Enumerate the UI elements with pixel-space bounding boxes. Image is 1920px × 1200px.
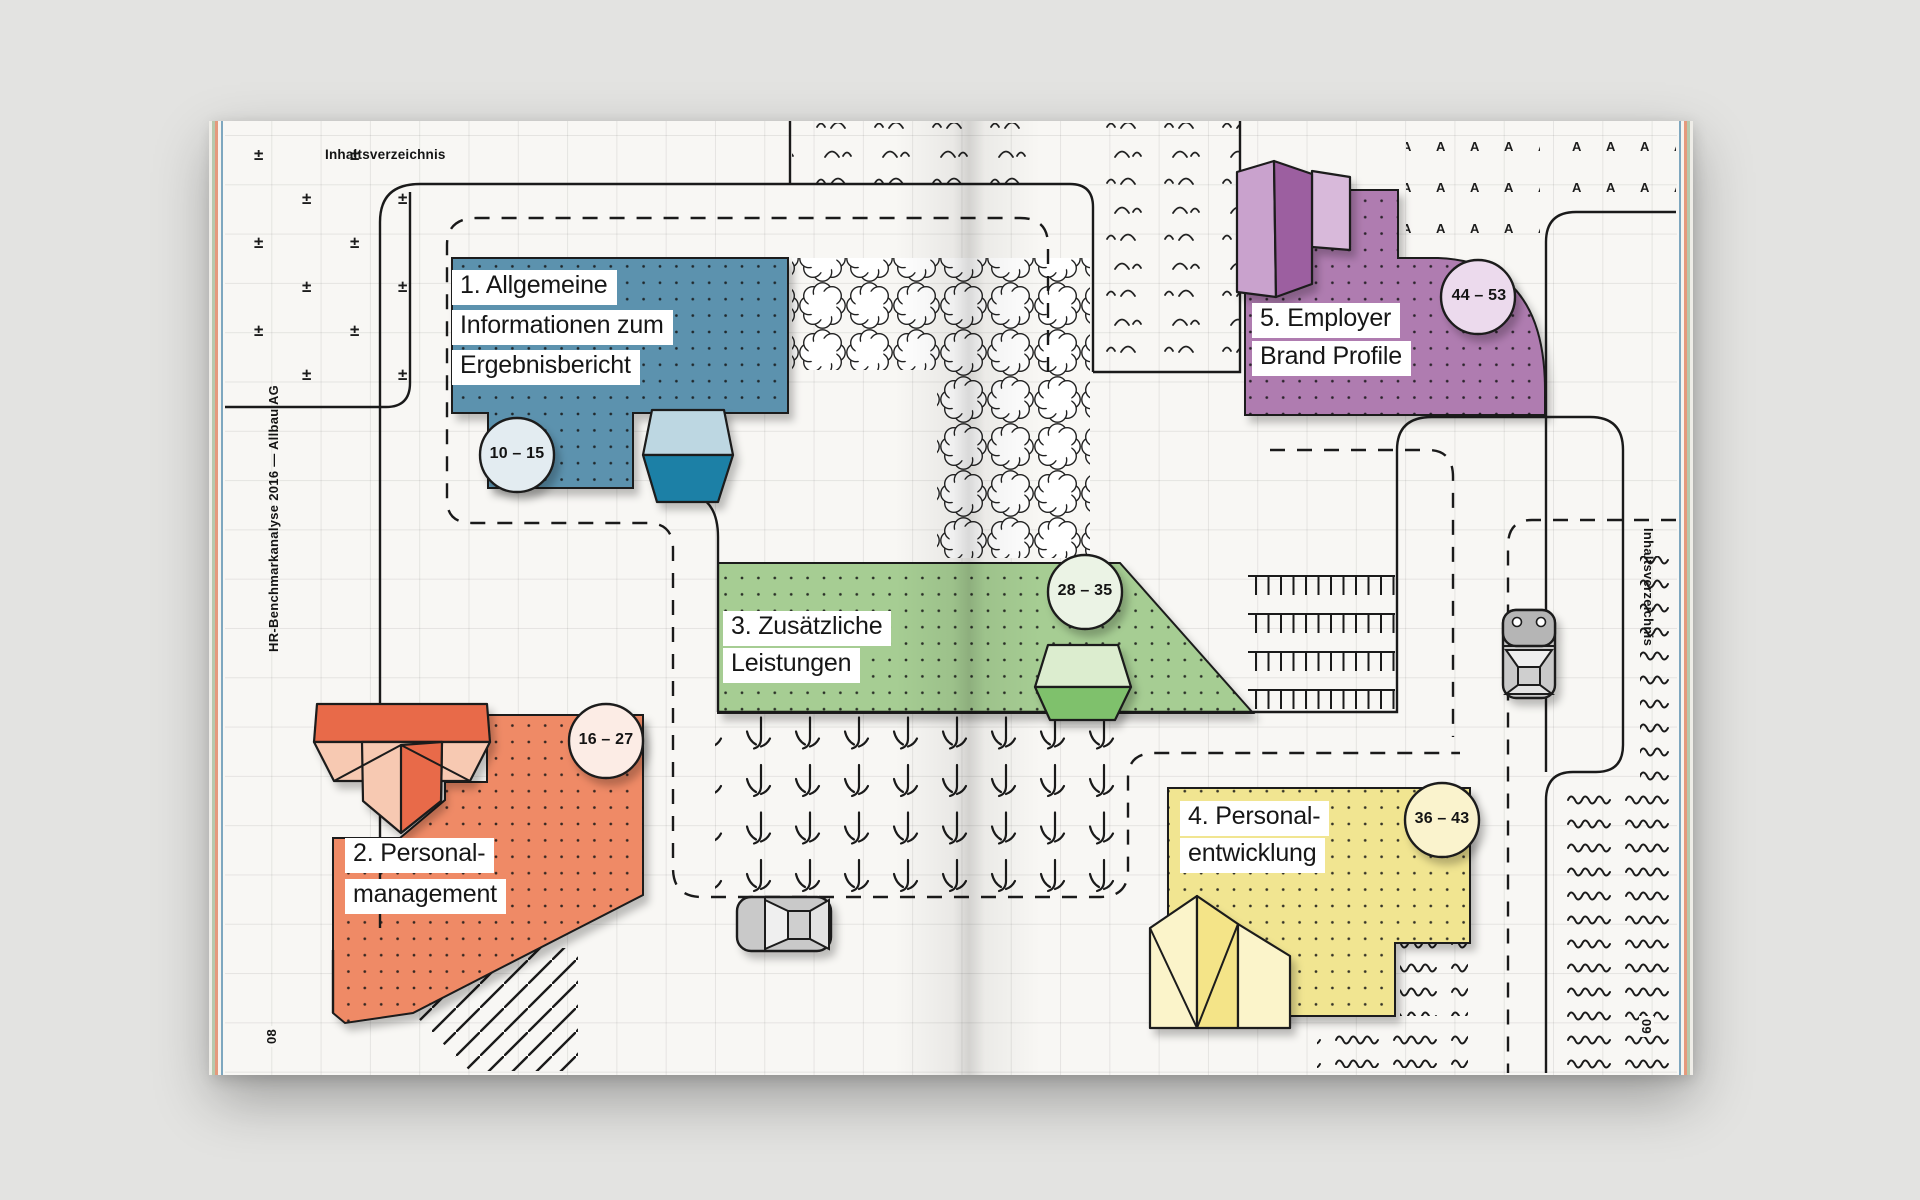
building-blue	[643, 410, 733, 502]
toc-title-4-line-1: 4. Personal-	[1180, 801, 1329, 836]
letter-field-right	[1558, 123, 1676, 205]
toc-pages-3: 28 – 35	[1039, 582, 1131, 600]
toc-title-1-line-2: Informationen zum	[452, 310, 673, 345]
page-number-left: 08	[264, 1026, 279, 1047]
car-vertical	[1503, 610, 1555, 698]
page-edge-left	[209, 121, 225, 1075]
tree-grove	[792, 258, 1090, 558]
toc-map-illustration: ± ± A	[0, 0, 1920, 1200]
toc-title-5-line-2: Brand Profile	[1252, 341, 1411, 376]
toc-pages-4: 36 – 43	[1396, 810, 1488, 828]
page-number-right: 09	[1639, 1016, 1654, 1037]
book-spread-photo: ± ± A	[0, 0, 1920, 1200]
wave-patch-2	[1317, 1023, 1468, 1068]
sprout-field	[715, 715, 1115, 905]
sidebar-right-title: Inhaltsverzeichnis	[1641, 528, 1656, 646]
bird-field-top-left	[792, 123, 1040, 184]
toc-title-1-line-3: Ergebnisbericht	[452, 350, 640, 385]
toc-title-1-line-1: 1. Allgemeine	[452, 270, 617, 305]
toc-title-3-line-2: Leistungen	[723, 648, 860, 683]
toc-pages-1: 10 – 15	[471, 445, 563, 463]
road-blue-building	[700, 497, 718, 712]
toc-title-4-line-2: entwicklung	[1180, 838, 1325, 873]
toc-pages-2: 16 – 27	[560, 731, 652, 749]
sidebar-left-title: HR-Benchmarkanalyse 2016 — Allbau AG	[266, 385, 281, 652]
toc-pages-5: 44 – 53	[1433, 287, 1525, 305]
toc-title-5-line-1: 5. Employer	[1252, 303, 1400, 338]
toc-title-2-line-1: 2. Personal-	[345, 838, 494, 873]
bird-field-center	[1093, 123, 1240, 372]
page-edge-right	[1677, 121, 1693, 1075]
toc-title-2-line-2: management	[345, 879, 506, 914]
building-green	[1035, 645, 1131, 720]
fence-field	[1248, 558, 1395, 710]
car-horizontal	[737, 897, 831, 951]
wave-patch-1	[1400, 943, 1468, 1016]
toc-title-3-line-1: 3. Zusätzliche	[723, 611, 891, 646]
page-header: Inhaltsverzeichnis	[325, 147, 446, 162]
letter-field-left	[1406, 123, 1540, 250]
wave-patch-3	[1558, 790, 1676, 1071]
